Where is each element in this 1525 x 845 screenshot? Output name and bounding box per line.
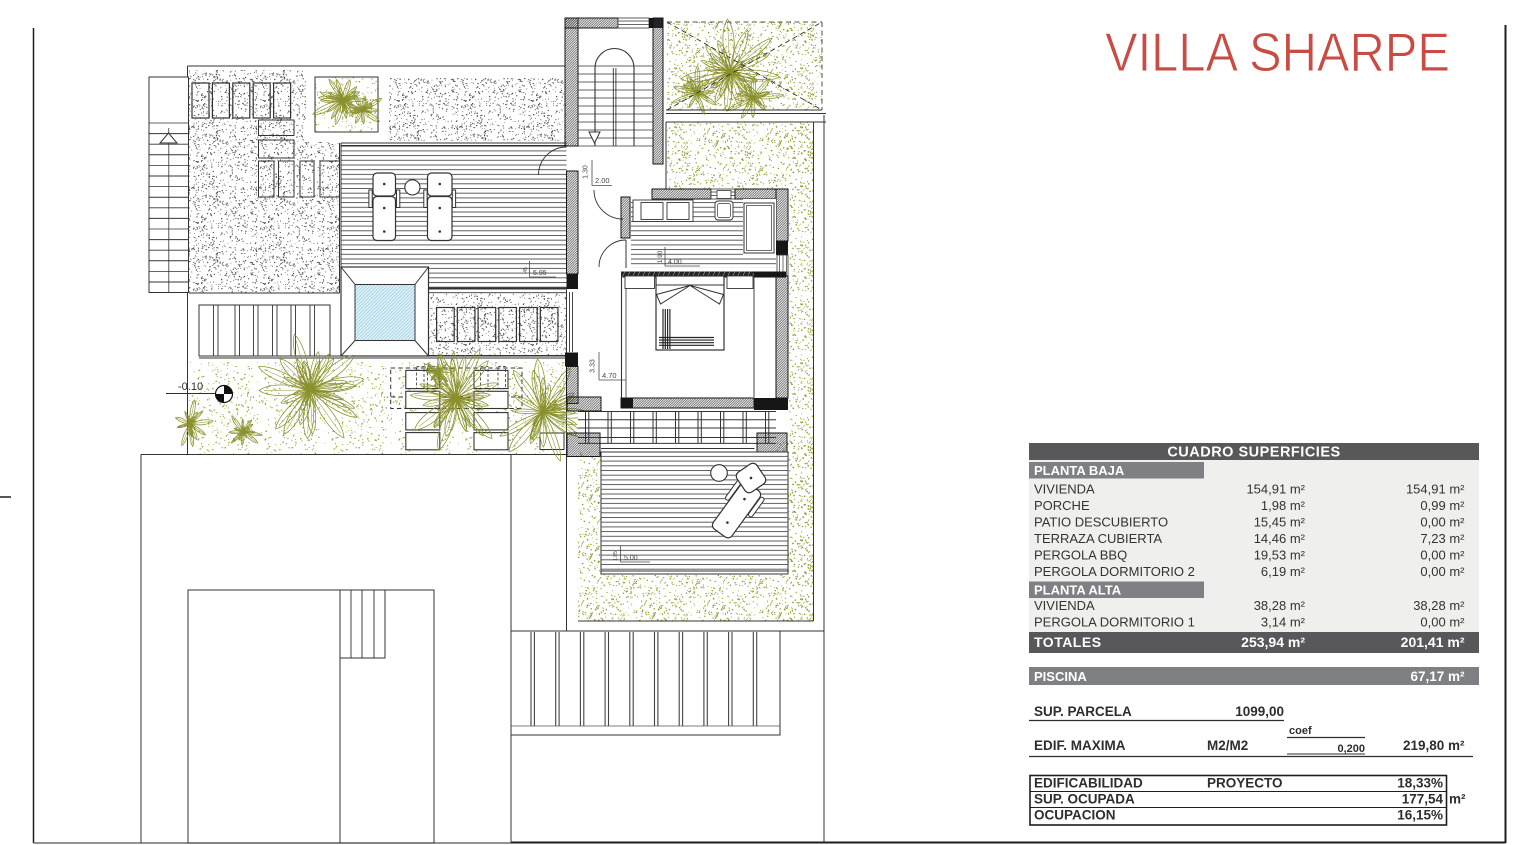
svg-text:EDIF. MAXIMA: EDIF. MAXIMA	[1034, 738, 1126, 753]
svg-text:3.33: 3.33	[590, 359, 597, 373]
svg-text:PERGOLA DORMITORIO 2: PERGOLA DORMITORIO 2	[1034, 564, 1195, 579]
svg-text:5.95: 5.95	[533, 270, 547, 277]
svg-text:0,00 m²: 0,00 m²	[1420, 515, 1465, 530]
svg-text:6,19 m²: 6,19 m²	[1261, 564, 1306, 579]
svg-text:16,15%: 16,15%	[1397, 808, 1443, 823]
svg-text:1099,00: 1099,00	[1235, 704, 1284, 719]
svg-text:PERGOLA BBQ: PERGOLA BBQ	[1034, 548, 1127, 563]
svg-text:-0.10: -0.10	[178, 381, 203, 393]
svg-text:1.90: 1.90	[657, 250, 664, 263]
svg-text:PLANTA BAJA: PLANTA BAJA	[1034, 463, 1125, 478]
svg-text:0,00 m²: 0,00 m²	[1420, 615, 1465, 630]
svg-text:177,54: 177,54	[1402, 792, 1444, 807]
svg-text:1.85: 1.85	[613, 551, 619, 561]
svg-text:0,99 m²: 0,99 m²	[1420, 498, 1465, 513]
svg-text:219,80 m²: 219,80 m²	[1403, 738, 1465, 753]
svg-text:CUADRO SUPERFICIES: CUADRO SUPERFICIES	[1167, 445, 1340, 461]
svg-text:1,98 m²: 1,98 m²	[1261, 498, 1306, 513]
svg-text:OCUPACION: OCUPACION	[1034, 808, 1116, 823]
svg-text:M2/M2: M2/M2	[1207, 738, 1248, 753]
svg-text:PORCHE: PORCHE	[1034, 498, 1090, 513]
svg-text:PLANTA ALTA: PLANTA ALTA	[1034, 583, 1122, 598]
svg-text:154,91 m²: 154,91 m²	[1246, 482, 1305, 497]
svg-text:m²: m²	[1449, 792, 1466, 807]
svg-text:0,00 m²: 0,00 m²	[1420, 548, 1465, 563]
svg-text:PISCINA: PISCINA	[1034, 669, 1087, 684]
svg-text:EDIFICABILIDAD: EDIFICABILIDAD	[1034, 776, 1143, 791]
svg-text:PERGOLA DORMITORIO 1: PERGOLA DORMITORIO 1	[1034, 615, 1195, 630]
svg-text:45: 45	[523, 267, 529, 273]
svg-text:67,17 m²: 67,17 m²	[1410, 669, 1465, 684]
svg-text:VILLA SHARPE: VILLA SHARPE	[1105, 21, 1450, 83]
svg-text:0,00 m²: 0,00 m²	[1420, 564, 1465, 579]
svg-text:coef: coef	[1289, 725, 1312, 737]
svg-text:154,91 m²: 154,91 m²	[1406, 482, 1465, 497]
svg-text:18,33%: 18,33%	[1397, 776, 1443, 791]
svg-text:TERRAZA CUBIERTA: TERRAZA CUBIERTA	[1034, 531, 1162, 546]
svg-text:VIVIENDA: VIVIENDA	[1034, 598, 1095, 613]
svg-text:19,53 m²: 19,53 m²	[1254, 548, 1306, 563]
svg-text:7,23 m²: 7,23 m²	[1420, 531, 1465, 546]
svg-text:38,28 m²: 38,28 m²	[1254, 598, 1306, 613]
svg-text:1.30: 1.30	[583, 165, 590, 179]
svg-text:TOTALES: TOTALES	[1034, 634, 1102, 650]
svg-text:14,46 m²: 14,46 m²	[1254, 531, 1306, 546]
svg-text:3,14 m²: 3,14 m²	[1261, 615, 1306, 630]
svg-text:38,28 m²: 38,28 m²	[1413, 598, 1465, 613]
svg-text:4.70: 4.70	[602, 371, 617, 380]
svg-text:253,94 m²: 253,94 m²	[1241, 634, 1305, 650]
svg-text:15,45 m²: 15,45 m²	[1254, 515, 1306, 530]
svg-text:201,41 m²: 201,41 m²	[1401, 634, 1465, 650]
svg-text:0,200: 0,200	[1337, 743, 1365, 755]
svg-text:SUP. PARCELA: SUP. PARCELA	[1034, 704, 1132, 719]
svg-text:VIVIENDA: VIVIENDA	[1034, 482, 1095, 497]
svg-text:4.00: 4.00	[668, 259, 682, 266]
svg-text:SUP. OCUPADA: SUP. OCUPADA	[1034, 792, 1135, 807]
svg-text:PROYECTO: PROYECTO	[1207, 776, 1283, 791]
svg-text:2.00: 2.00	[595, 176, 610, 185]
svg-text:5.00: 5.00	[624, 555, 638, 562]
svg-text:PATIO DESCUBIERTO: PATIO DESCUBIERTO	[1034, 515, 1168, 530]
